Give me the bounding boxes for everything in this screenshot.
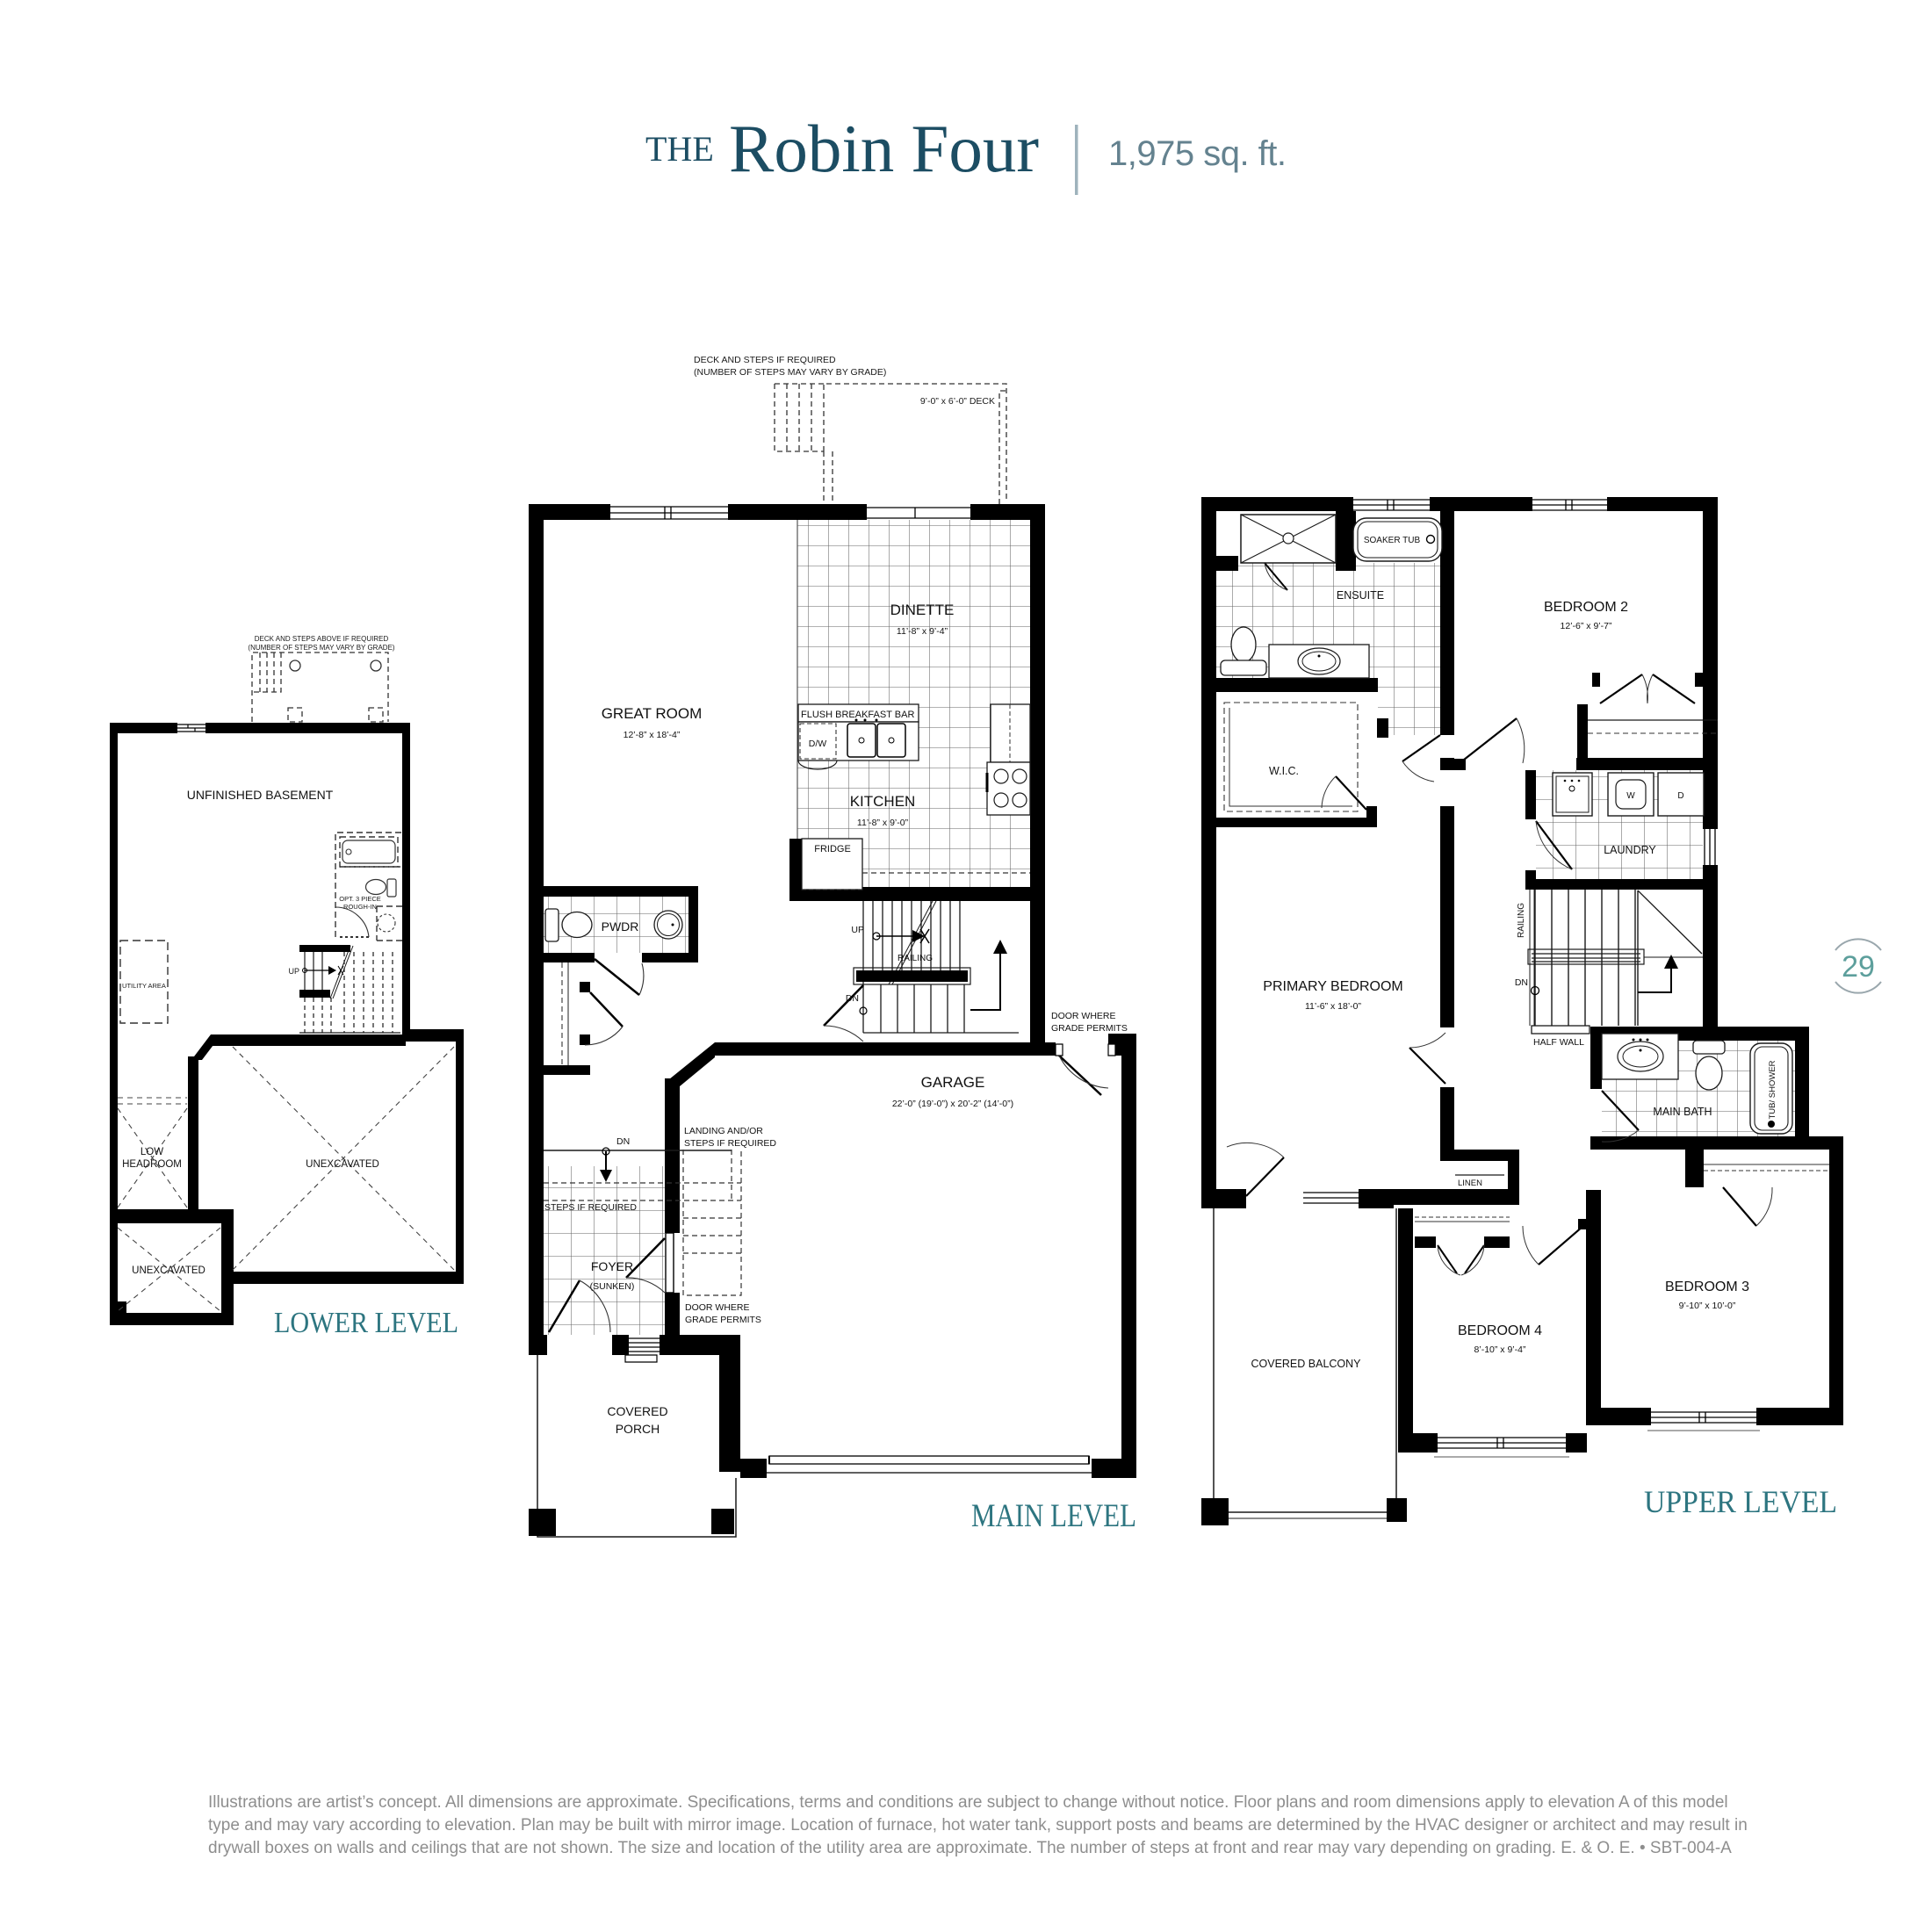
svg-text:COVERED BALCONY: COVERED BALCONY [1251, 1358, 1361, 1370]
svg-text:D: D [1677, 791, 1683, 801]
svg-text:22’-0” (19’-0”) x 20’-2” (14’-: 22’-0” (19’-0”) x 20’-2” (14’-0”) [892, 1099, 1013, 1109]
svg-text:LOW: LOW [141, 1147, 163, 1157]
svg-text:29: 29 [1842, 950, 1875, 984]
svg-text:MAIN BATH: MAIN BATH [1653, 1106, 1712, 1118]
svg-text:PWDR: PWDR [602, 919, 639, 934]
svg-text:1,975 sq. ft.: 1,975 sq. ft. [1108, 134, 1287, 173]
svg-text:LANDING AND/OR: LANDING AND/OR [684, 1126, 763, 1136]
svg-text:11’-6” x 18’-0”: 11’-6” x 18’-0” [1305, 1001, 1361, 1012]
svg-text:GARAGE: GARAGE [921, 1074, 985, 1091]
svg-text:type and may vary according to: type and may vary according to elevation… [208, 1816, 1748, 1835]
svg-text:THE: THE [645, 129, 714, 169]
svg-text:DINETTE: DINETTE [890, 602, 955, 618]
svg-text:(NUMBER OF STEPS MAY VARY BY G: (NUMBER OF STEPS MAY VARY BY GRADE) [694, 367, 886, 378]
svg-text:DOOR WHERE: DOOR WHERE [685, 1302, 750, 1313]
svg-text:LINEN: LINEN [1458, 1179, 1482, 1188]
svg-text:8’-10” x 9’-4”: 8’-10” x 9’-4” [1474, 1344, 1526, 1355]
svg-text:COVERED: COVERED [607, 1404, 667, 1418]
svg-text:UPPER LEVEL: UPPER LEVEL [1644, 1484, 1837, 1519]
svg-text:GRADE PERMITS: GRADE PERMITS [685, 1315, 761, 1325]
svg-text:UNFINISHED BASEMENT: UNFINISHED BASEMENT [187, 788, 334, 802]
svg-text:OPT. 3 PIECE: OPT. 3 PIECE [339, 895, 381, 903]
svg-text:ENSUITE: ENSUITE [1337, 589, 1384, 602]
svg-text:(NUMBER OF STEPS MAY VARY BY G: (NUMBER OF STEPS MAY VARY BY GRADE) [248, 644, 394, 652]
svg-text:MAIN LEVEL: MAIN LEVEL [971, 1498, 1136, 1534]
svg-text:RAILING: RAILING [898, 954, 933, 963]
svg-text:D/W: D/W [809, 739, 827, 749]
svg-text:DECK AND STEPS IF REQUIRED: DECK AND STEPS IF REQUIRED [694, 355, 836, 365]
svg-text:12’-8” x 18’-4”: 12’-8” x 18’-4” [624, 730, 681, 740]
svg-text:SOAKER TUB: SOAKER TUB [1364, 536, 1421, 545]
svg-text:UP: UP [851, 925, 864, 935]
svg-text:ROUGH-IN: ROUGH-IN [343, 903, 377, 911]
svg-text:W: W [1626, 791, 1635, 801]
svg-text:PORCH: PORCH [616, 1422, 660, 1436]
svg-text:9’-10” x 10’-0”: 9’-10” x 10’-0” [1679, 1301, 1736, 1311]
svg-text:UNEXCAVATED: UNEXCAVATED [132, 1265, 205, 1276]
svg-text:9’-0” x 6’-0” DECK: 9’-0” x 6’-0” DECK [920, 396, 995, 407]
svg-text:FLUSH BREAKFAST BAR: FLUSH BREAKFAST BAR [801, 710, 914, 720]
svg-text:12’-6” x 9’-7”: 12’-6” x 9’-7” [1561, 621, 1612, 631]
svg-text:UNEXCAVATED: UNEXCAVATED [306, 1159, 379, 1170]
svg-text:BEDROOM 2: BEDROOM 2 [1544, 600, 1628, 615]
svg-text:FOYER: FOYER [591, 1259, 633, 1273]
svg-text:LOWER LEVEL: LOWER LEVEL [274, 1307, 458, 1339]
svg-text:LAUNDRY: LAUNDRY [1604, 844, 1656, 856]
svg-text:drywall boxes on walls and cei: drywall boxes on walls and ceilings that… [208, 1839, 1732, 1857]
svg-text:GRADE PERMITS: GRADE PERMITS [1051, 1023, 1128, 1034]
svg-text:11’-8” x 9’-4”: 11’-8” x 9’-4” [897, 626, 948, 637]
svg-text:PRIMARY BEDROOM: PRIMARY BEDROOM [1263, 979, 1402, 994]
svg-text:Robin Four: Robin Four [729, 111, 1039, 186]
svg-text:DN: DN [616, 1136, 630, 1147]
svg-text:(SUNKEN): (SUNKEN) [590, 1281, 635, 1292]
svg-text:UTILITY AREA: UTILITY AREA [122, 982, 166, 990]
svg-text:STEPS IF REQUIRED: STEPS IF REQUIRED [684, 1138, 776, 1149]
svg-text:DECK AND STEPS ABOVE IF REQUIR: DECK AND STEPS ABOVE IF REQUIRED [255, 635, 389, 643]
svg-text:KITCHEN: KITCHEN [850, 793, 916, 810]
svg-text:GREAT ROOM: GREAT ROOM [602, 705, 703, 722]
svg-text:BEDROOM 3: BEDROOM 3 [1665, 1280, 1749, 1294]
svg-text:FRIDGE: FRIDGE [814, 844, 851, 854]
svg-text:RAILING: RAILING [1517, 903, 1526, 938]
svg-text:UP: UP [288, 967, 299, 976]
svg-text:HEADROOM: HEADROOM [122, 1159, 182, 1170]
svg-text:DOOR WHERE: DOOR WHERE [1051, 1011, 1116, 1021]
svg-text:DN: DN [1515, 977, 1528, 988]
svg-text:TUB/ SHOWER: TUB/ SHOWER [1768, 1060, 1777, 1119]
svg-text:W.I.C.: W.I.C. [1269, 765, 1299, 777]
svg-text:Illustrations are artist’s con: Illustrations are artist’s concept. All … [208, 1793, 1728, 1812]
svg-text:11’-8” x 9’-0”: 11’-8” x 9’-0” [857, 818, 909, 828]
svg-text:STEPS IF REQUIRED: STEPS IF REQUIRED [544, 1202, 637, 1213]
svg-text:BEDROOM 4: BEDROOM 4 [1458, 1323, 1542, 1338]
svg-text:HALF WALL: HALF WALL [1533, 1037, 1584, 1048]
